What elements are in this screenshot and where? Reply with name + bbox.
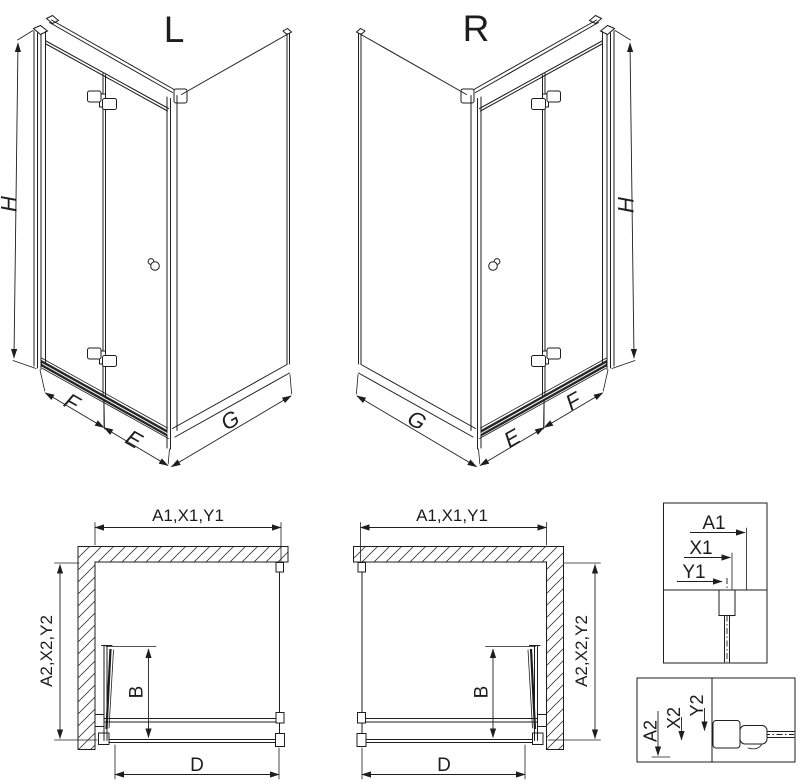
detail-view-top-profile: A1 X1 Y1 (664, 503, 768, 663)
view-3d-right: R H G E F (356, 8, 638, 467)
dim-label-y1-detail: Y1 (682, 562, 705, 583)
dim-label-e-left: E (121, 425, 146, 454)
dim-label-h-left: H (0, 196, 22, 212)
variant-label-right: R (463, 8, 490, 49)
dim-label-x1-detail: X1 (689, 538, 712, 559)
dim-label-a1x1y1-left: A1,X1,Y1 (152, 506, 224, 525)
dim-label-a1x1y1-right: A1,X1,Y1 (416, 506, 488, 525)
dim-label-y2-detail: Y2 (687, 694, 707, 716)
dim-label-a2x2y2-right: A2,X2,Y2 (572, 615, 591, 687)
dim-label-b-left: B (127, 686, 148, 699)
dim-label-d-left: D (190, 755, 204, 776)
variant-label-left: L (164, 9, 185, 50)
dimension-b-left: B (106, 647, 156, 738)
dim-label-b-right: B (472, 686, 493, 699)
drawing-canvas: L H F E G R H G E F (0, 0, 800, 784)
dimension-d-right: D (362, 745, 525, 779)
dim-label-f-right: F (561, 386, 586, 415)
dim-label-g-left: G (216, 405, 243, 435)
dim-label-d-right: D (437, 755, 451, 776)
dimension-d-left: D (115, 745, 279, 779)
detail-view-bottom-profile: A2 X2 Y2 (637, 678, 795, 762)
plan-view-left: A1,X1,Y1 A2,X2,Y2 B D (37, 506, 288, 779)
dim-label-f-left: F (60, 388, 85, 417)
view-3d-left: L H F E G (0, 9, 292, 467)
dim-label-a2-detail: A2 (640, 720, 660, 742)
shower-enclosure-technical-drawing: L H F E G R H G E F (0, 0, 800, 784)
dim-label-x2-detail: X2 (664, 707, 684, 729)
dim-label-a1-detail: A1 (702, 513, 725, 534)
plan-view-right: A1,X1,Y1 A2,X2,Y2 B D (354, 506, 601, 779)
dim-label-h-right: H (614, 197, 639, 213)
dim-label-e-right: E (500, 424, 525, 453)
dim-label-a2x2y2-left: A2,X2,Y2 (37, 615, 56, 687)
dim-label-g-right: G (403, 405, 430, 435)
dimension-b-right: B (472, 647, 536, 738)
